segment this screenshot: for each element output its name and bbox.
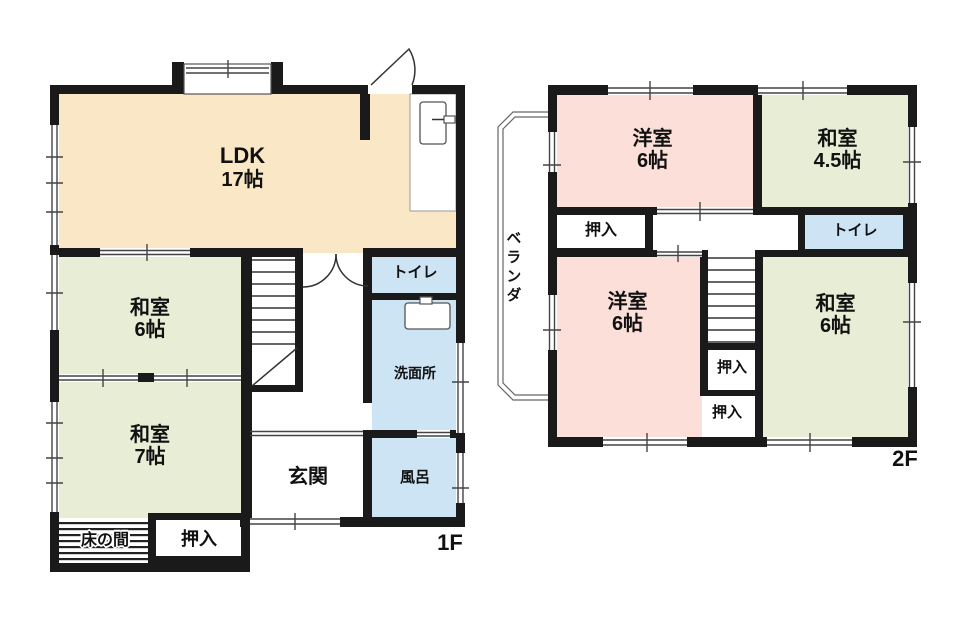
label-washitsu6-2f: 和室 6帖 <box>778 289 893 341</box>
label-toilet-1f: トイレ <box>377 261 453 285</box>
label-oshiire-2f-top: 押入 <box>560 218 642 244</box>
label-genkan: 玄関 <box>268 463 348 491</box>
kitchen-sink-icon <box>420 102 446 144</box>
door-arc-left <box>303 254 336 287</box>
label-veranda: ベランダ <box>498 210 526 325</box>
label-furo: 風呂 <box>382 466 448 490</box>
backdoor-arc <box>371 49 415 85</box>
room-youshitsu6-bottom-area <box>557 257 702 437</box>
washstand-icon <box>405 303 450 329</box>
label-oshiire-1f: 押入 <box>155 526 243 552</box>
label-floor1: 1F <box>430 530 470 556</box>
stairs-1f <box>252 260 297 386</box>
label-toilet-2f: トイレ <box>815 219 895 243</box>
stairs-2f <box>708 258 755 342</box>
room-washitsu6-2f-area <box>763 257 908 437</box>
label-senmenjo: 洗面所 <box>377 363 453 385</box>
label-floor2: 2F <box>885 446 925 472</box>
label-washitsu45: 和室 4.5帖 <box>780 124 895 176</box>
floorplan-canvas: LDK 17帖 和室 6帖 和室 7帖 床の間 押入 玄関 トイレ 洗面所 風呂… <box>0 0 960 627</box>
label-washitsu6-1f: 和室 6帖 <box>95 293 205 345</box>
label-youshitsu6-bottom: 洋室 6帖 <box>570 287 685 339</box>
label-youshitsu6-top: 洋室 6帖 <box>595 124 710 176</box>
label-oshiire-lower: 押入 <box>703 402 751 424</box>
label-washitsu7-1f: 和室 7帖 <box>95 420 205 472</box>
label-ldk: LDK 17帖 <box>185 140 300 195</box>
label-oshiire-mid: 押入 <box>708 357 756 379</box>
label-tokonoma: 床の間 <box>62 528 148 554</box>
